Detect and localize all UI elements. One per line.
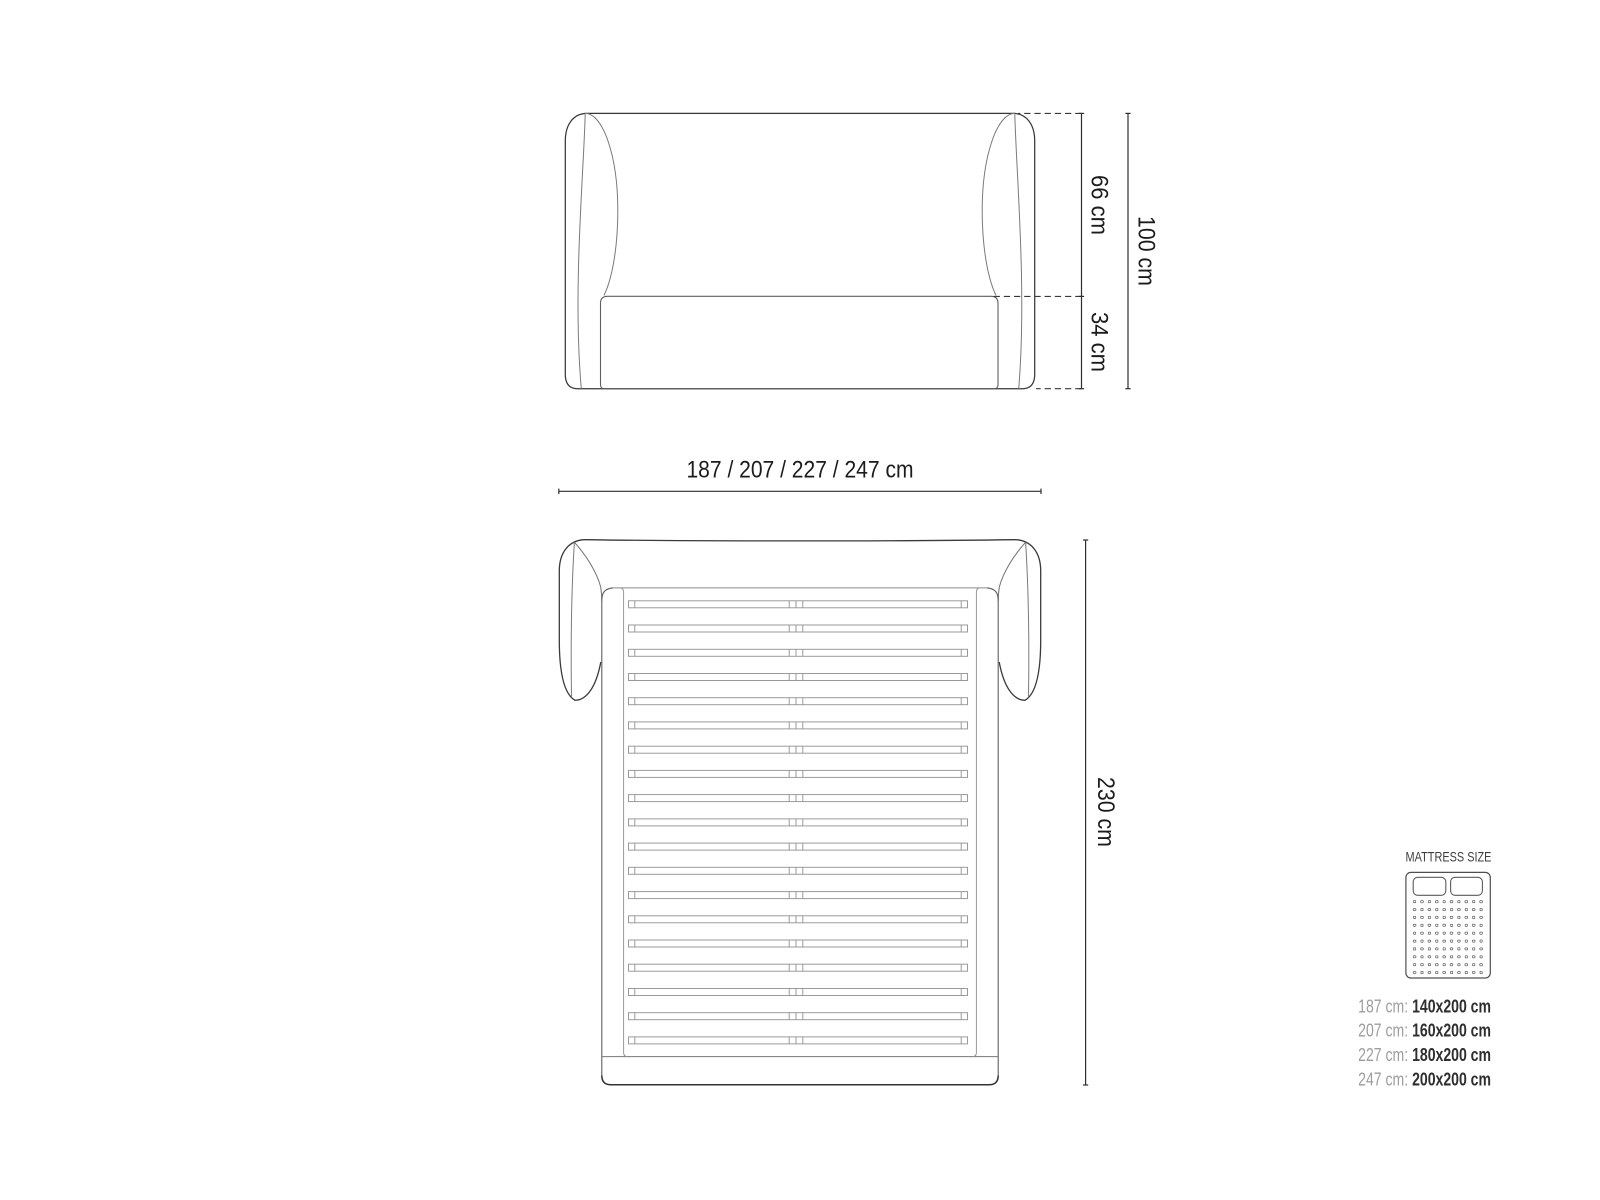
svg-text:100 cm: 100 cm [1133,216,1161,286]
svg-text:MATTRESS SIZE: MATTRESS SIZE [1406,849,1492,865]
svg-text:66 cm: 66 cm [1086,175,1113,235]
svg-text:227 cm: 180x200 cm: 227 cm: 180x200 cm [1358,1045,1491,1065]
svg-text:230 cm: 230 cm [1093,777,1121,847]
svg-text:187 / 207 / 227 / 247 cm: 187 / 207 / 227 / 247 cm [686,455,913,483]
svg-text:34 cm: 34 cm [1086,312,1113,372]
svg-text:247 cm: 200x200 cm: 247 cm: 200x200 cm [1358,1070,1491,1090]
svg-text:187 cm: 140x200 cm: 187 cm: 140x200 cm [1358,997,1491,1017]
svg-text:207 cm: 160x200 cm: 207 cm: 160x200 cm [1358,1021,1491,1041]
